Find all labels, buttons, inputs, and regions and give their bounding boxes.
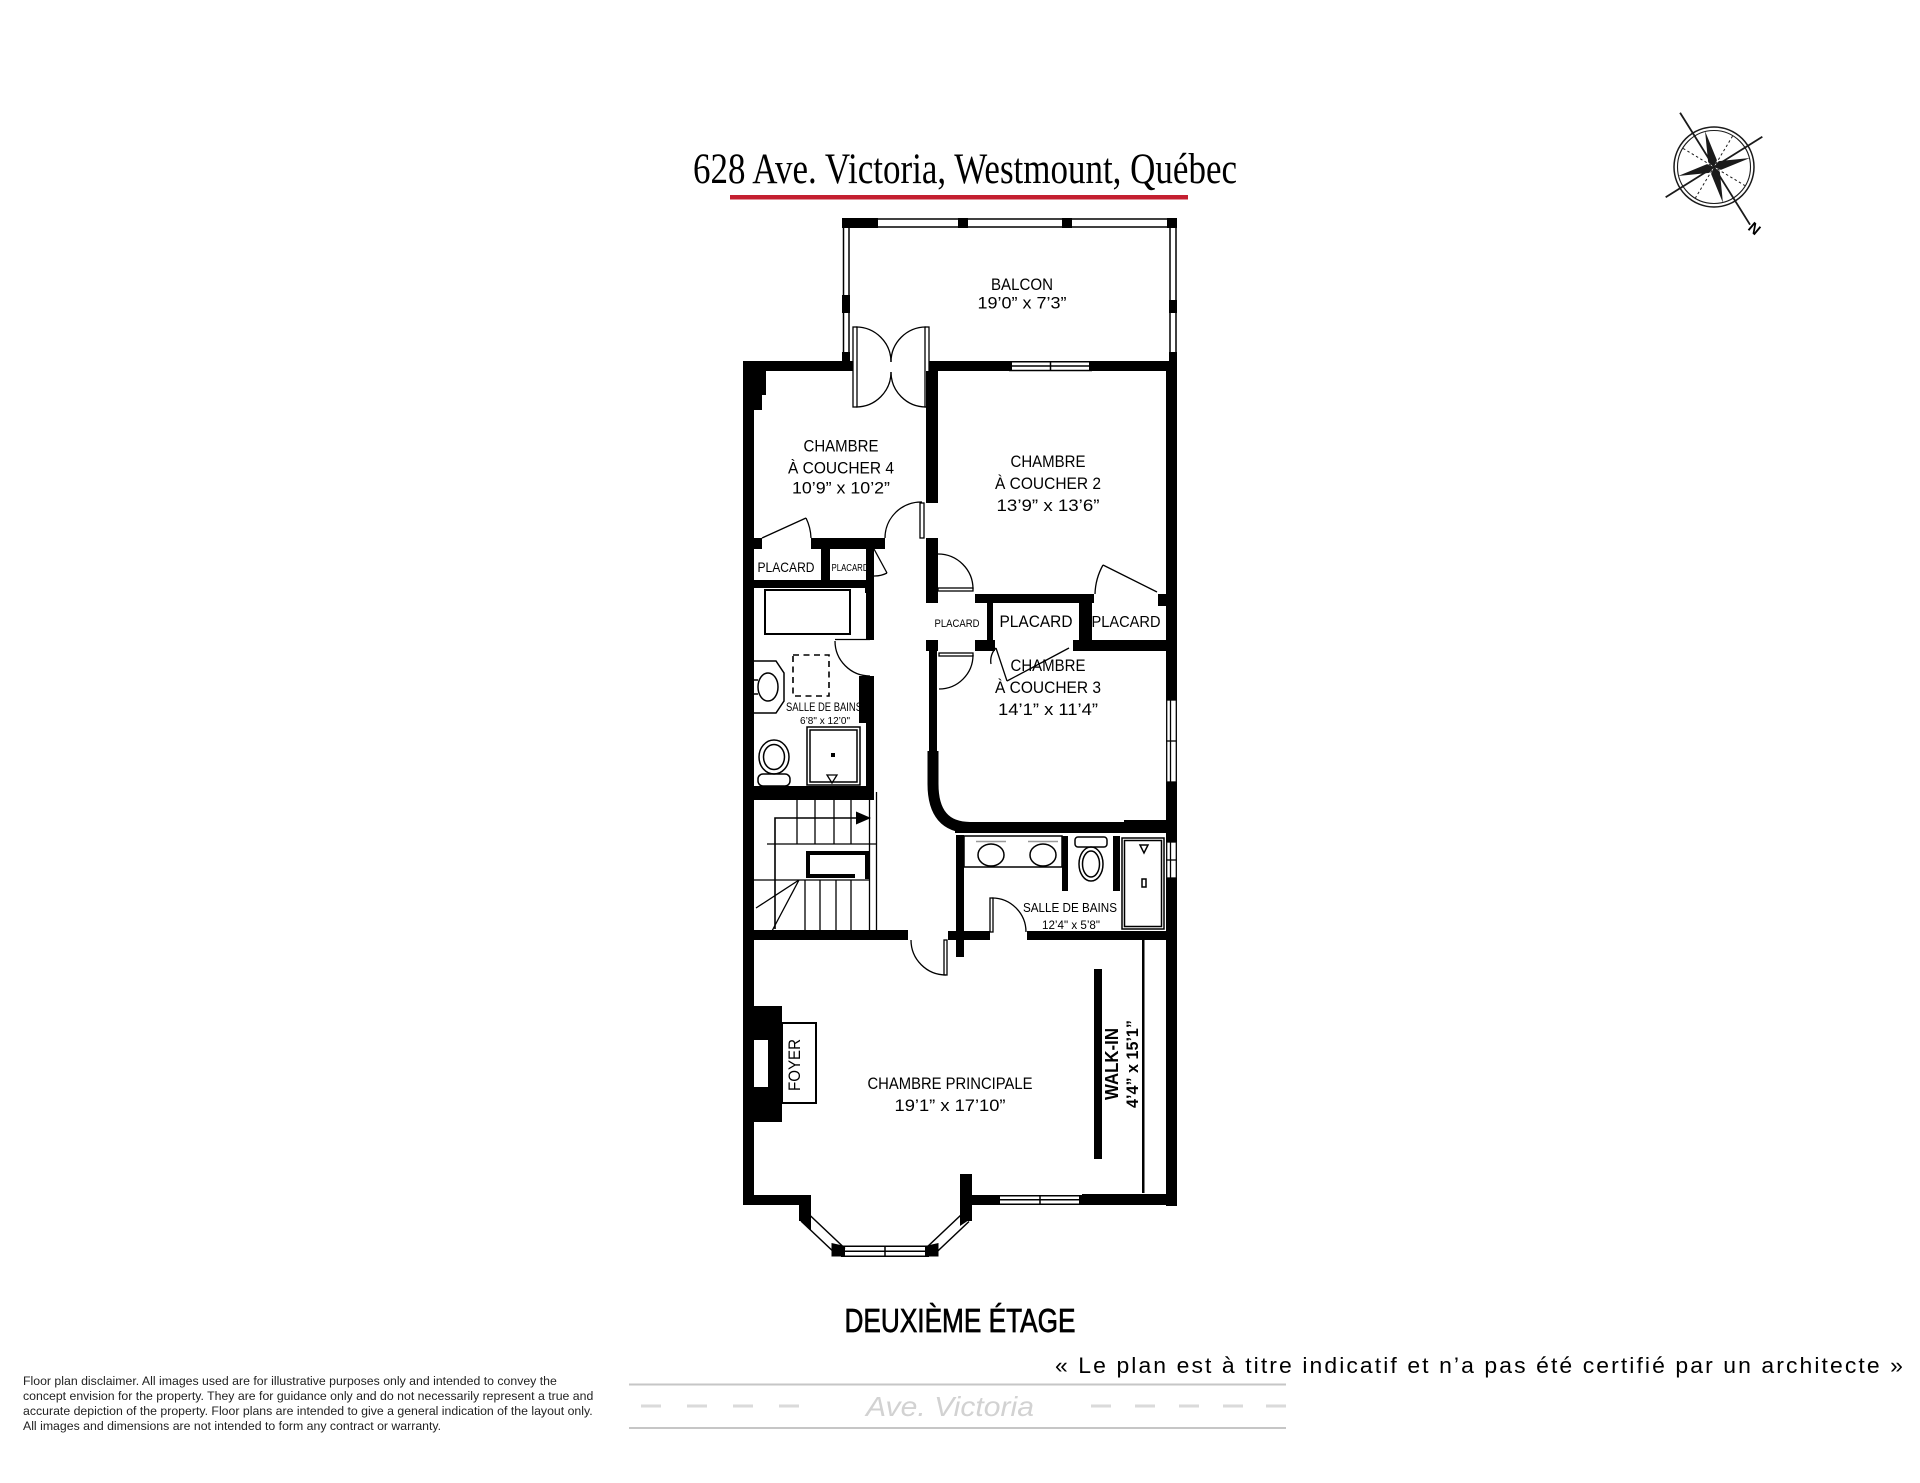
svg-text:accurate depiction of the prop: accurate depiction of the property. Floo… <box>23 1404 593 1418</box>
svg-text:concept envision for the prope: concept envision for the property. They … <box>23 1389 593 1403</box>
svg-text:6’8" x 12’0": 6’8" x 12’0" <box>800 715 850 727</box>
svg-text:14’1” x 11’4”: 14’1” x 11’4” <box>998 701 1098 719</box>
svg-text:13’9” x 13’6”: 13’9” x 13’6” <box>997 497 1100 515</box>
svg-text:SALLE DE BAINS: SALLE DE BAINS <box>786 702 862 714</box>
svg-text:PLACARD: PLACARD <box>935 618 980 630</box>
svg-text:PLACARD: PLACARD <box>758 559 815 575</box>
svg-text:PLACARD: PLACARD <box>1092 614 1161 631</box>
svg-text:« Le plan est à titre indicati: « Le plan est à titre indicatif et n’a p… <box>1055 1353 1905 1378</box>
svg-text:À COUCHER 4: À COUCHER 4 <box>788 459 894 478</box>
svg-text:19’1” x 17’10”: 19’1” x 17’10” <box>895 1097 1006 1115</box>
svg-text:628 Ave. Victoria, Westmount,: 628 Ave. Victoria, Westmount, Québec <box>693 146 1237 193</box>
svg-text:CHAMBRE: CHAMBRE <box>1011 453 1086 471</box>
svg-text:CHAMBRE PRINCIPALE: CHAMBRE PRINCIPALE <box>868 1075 1033 1093</box>
svg-text:CHAMBRE: CHAMBRE <box>1011 657 1086 675</box>
svg-text:12’4" x 5’8": 12’4" x 5’8" <box>1042 918 1100 932</box>
svg-text:SALLE DE BAINS: SALLE DE BAINS <box>1023 900 1117 915</box>
svg-text:PLACARD: PLACARD <box>1000 613 1073 631</box>
svg-text:DEUXIÈME ÉTAGE: DEUXIÈME ÉTAGE <box>845 1302 1076 1339</box>
svg-text:4’4” x 15’1”: 4’4” x 15’1” <box>1123 1020 1142 1108</box>
svg-text:19’0” x 7’3”: 19’0” x 7’3” <box>978 295 1067 313</box>
svg-text:Ave. Victoria: Ave. Victoria <box>864 1391 1034 1422</box>
svg-text:À COUCHER 3: À COUCHER 3 <box>995 678 1101 697</box>
svg-text:FOYER: FOYER <box>785 1039 804 1091</box>
svg-text:WALK-IN: WALK-IN <box>1102 1028 1122 1100</box>
svg-text:10’9” x 10’2”: 10’9” x 10’2” <box>792 480 890 498</box>
svg-text:À COUCHER 2: À COUCHER 2 <box>995 474 1101 493</box>
svg-text:Floor plan disclaimer. All ima: Floor plan disclaimer. All images used a… <box>23 1374 557 1388</box>
svg-text:BALCON: BALCON <box>991 276 1053 294</box>
svg-text:CHAMBRE: CHAMBRE <box>804 438 879 456</box>
svg-text:PLACARD: PLACARD <box>832 562 869 574</box>
svg-text:All images and dimensions are: All images and dimensions are not intend… <box>23 1419 441 1433</box>
